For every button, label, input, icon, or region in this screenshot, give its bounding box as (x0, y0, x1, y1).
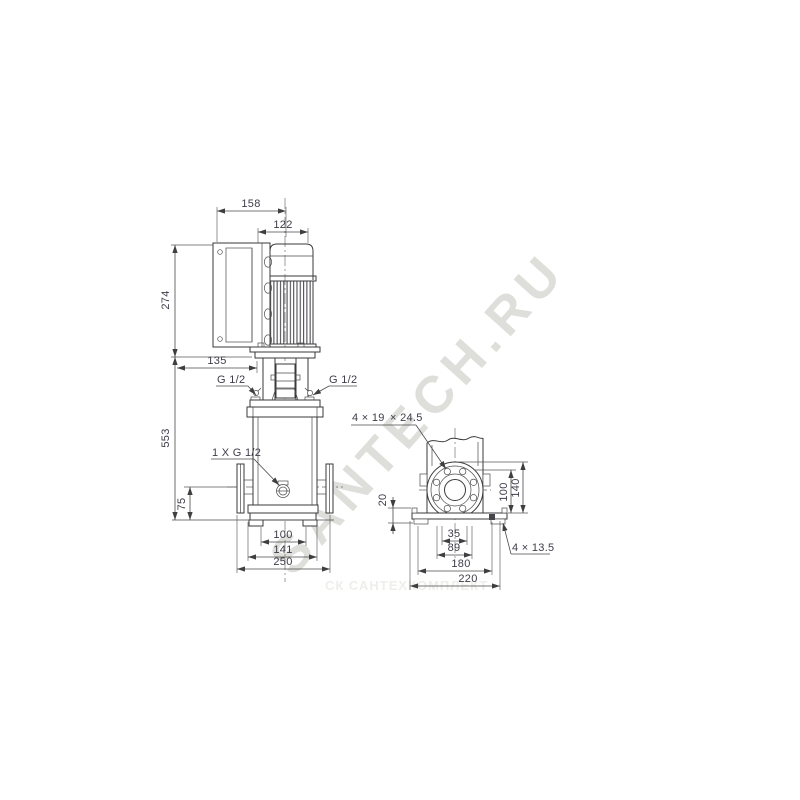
plate-foot-left (414, 519, 428, 524)
drawing-page: SANTECH.RU СК САНТЕХКОМПЛЕКТ (0, 0, 800, 800)
plate-lip-right (502, 508, 507, 513)
label-flange-holes-a: 4 × 19 (352, 412, 385, 424)
motor-adapter-plate-1 (250, 347, 320, 352)
motor-fins (270, 281, 313, 344)
plate-lip-left (412, 508, 417, 513)
control-box (213, 243, 270, 347)
label-base-holes: 4 × 13.5 (512, 542, 554, 554)
front-view (172, 198, 343, 582)
motor-adapter-plate-2 (255, 352, 315, 358)
dim-pump-height: 553 (160, 428, 172, 447)
stool-leg-left (263, 358, 275, 400)
base-pedestal (250, 513, 316, 520)
dim-base-inner: 100 (273, 529, 292, 541)
flange-lug-left (420, 474, 427, 486)
port-flange-face (420, 462, 490, 518)
dim-box-offset: 135 (207, 355, 226, 367)
dim-top-width: 158 (241, 198, 260, 210)
dim-port-to-port: 250 (273, 556, 292, 568)
motor-fin-ring-top (267, 276, 316, 281)
dim-base-mid: 141 (273, 544, 292, 556)
stool-leg-right (296, 358, 308, 400)
label-flange-holes-b: × 24.5 (390, 412, 423, 424)
dim-motor-height: 274 (160, 290, 172, 309)
dim-base-length: 180 (451, 558, 470, 570)
base-flange (248, 505, 318, 513)
motor-cap (270, 244, 313, 280)
dim-leg-inner: 35 (448, 528, 461, 540)
label-port-left: G 1/2 (217, 374, 245, 386)
dim-port-height: 75 (176, 498, 188, 511)
label-port-right: G 1/2 (329, 374, 357, 386)
flange-lug-right (483, 474, 490, 486)
dim-leg-outer: 89 (448, 542, 461, 554)
foot-right (303, 520, 317, 526)
dim-flange-top-height: 140 (510, 478, 522, 497)
drain-plug (277, 481, 290, 498)
dim-motor-width: 122 (273, 219, 292, 231)
dim-plate-length: 220 (458, 573, 477, 585)
technical-drawing: SANTECH.RU СК САНТЕХКОМПЛЕКТ (0, 0, 800, 800)
dim-flange-center-height: 100 (498, 482, 510, 501)
base-hole-mark (489, 514, 495, 520)
label-drain: 1 X G 1/2 (212, 447, 261, 459)
pump-head-flange (247, 407, 323, 417)
foot-left (249, 520, 263, 526)
pump-head-plate (250, 400, 320, 407)
dim-plate-height: 20 (377, 494, 389, 507)
